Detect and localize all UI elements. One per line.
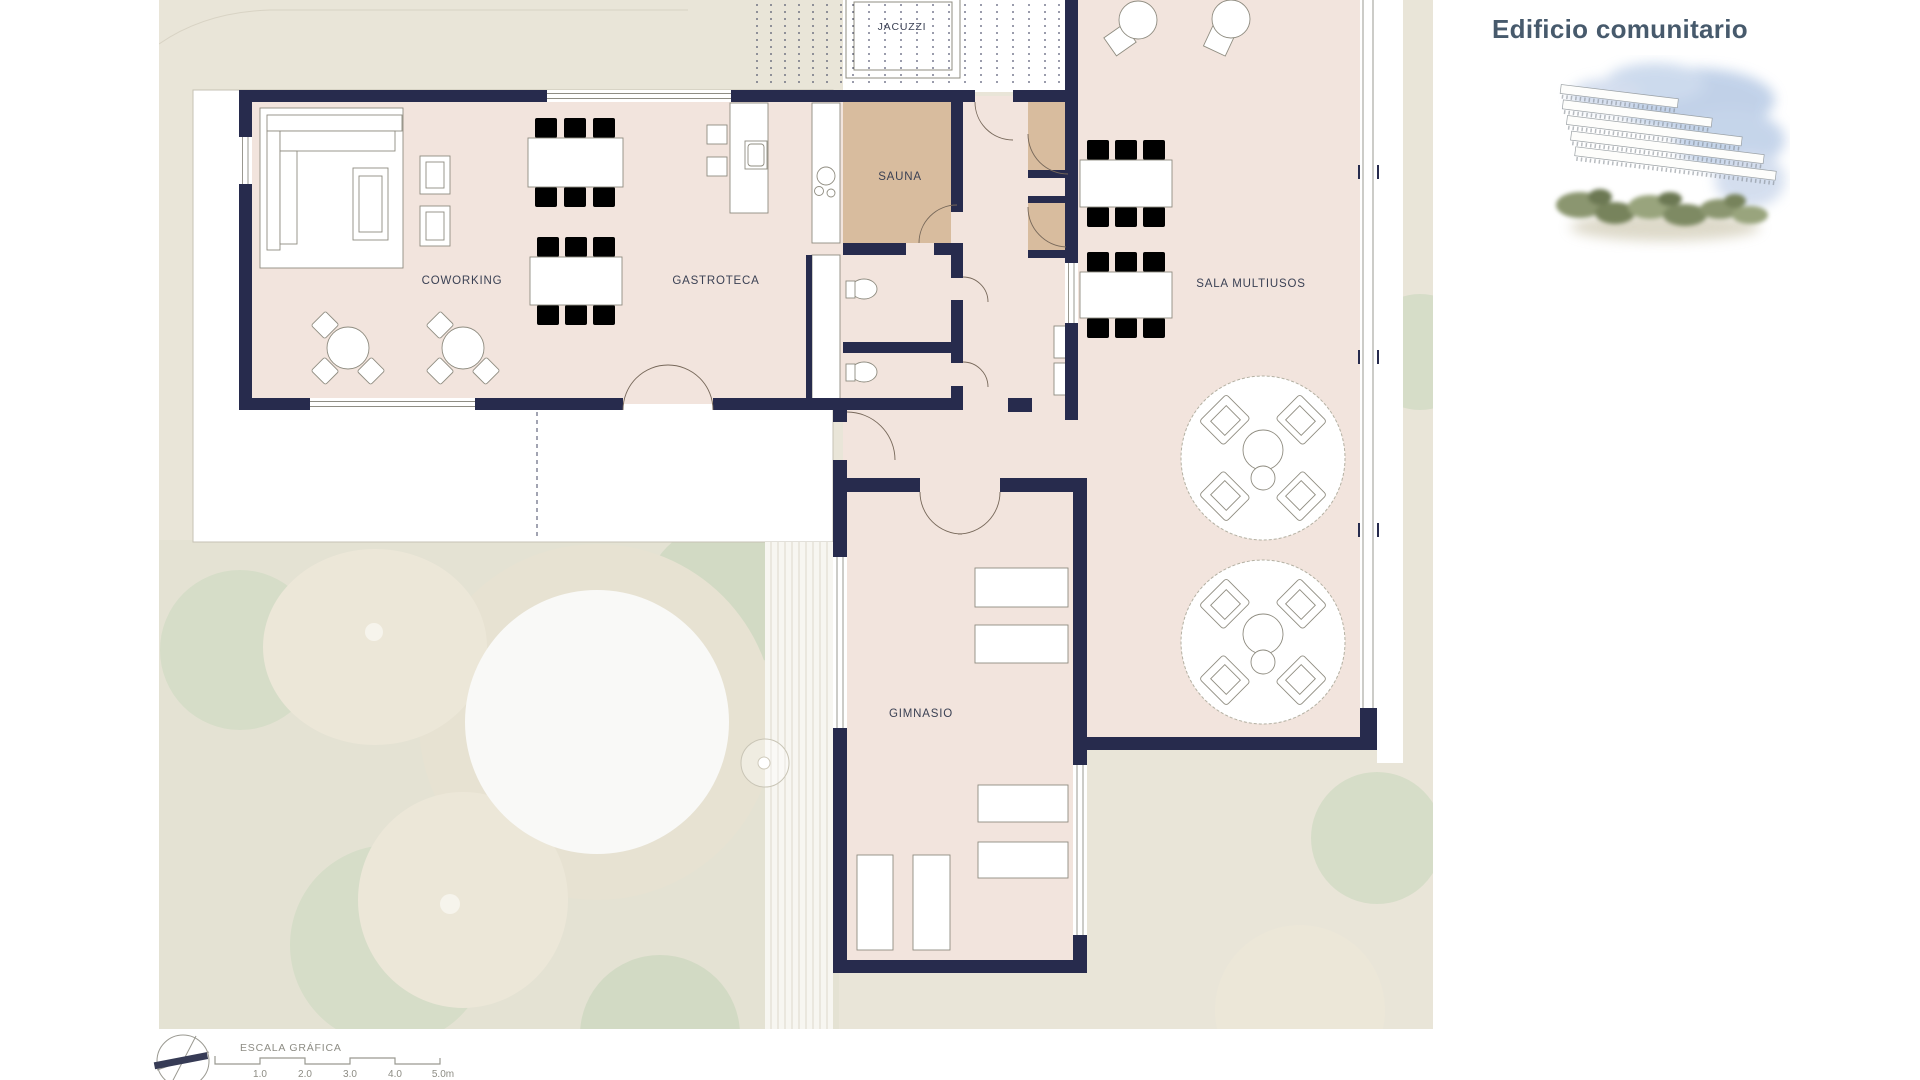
deck <box>765 542 833 1029</box>
meeting-table-1 <box>528 118 623 207</box>
scale-tick-5: 5.0m <box>432 1069 454 1080</box>
page-title: Edificio comunitario <box>1492 14 1748 45</box>
north-arrow-icon <box>154 1035 209 1080</box>
shower-2-floor <box>1028 203 1065 250</box>
scale-tick-3: 3.0 <box>343 1069 357 1080</box>
scale-bar-title: ESCALA GRÁFICA <box>240 1041 342 1054</box>
sala-table-1 <box>1080 140 1172 227</box>
scale-tick-2: 2.0 <box>298 1069 312 1080</box>
scale-tick-1: 1.0 <box>253 1069 267 1080</box>
scale-tick-4: 4.0 <box>388 1069 402 1080</box>
gimnasio-label: GIMNASIO <box>889 708 953 720</box>
sala-multiusos-label: SALA MULTIUSOS <box>1196 278 1305 290</box>
gastroteca-label: GASTROTECA <box>672 275 759 287</box>
meeting-table-2 <box>530 237 622 325</box>
lounge-circle-2 <box>1181 560 1345 724</box>
page: JACUZZI SAUNA COWORKING GASTROTECA SALA … <box>0 0 1920 1080</box>
coworking-label: COWORKING <box>422 275 503 287</box>
sauna-label: SAUNA <box>878 171 922 183</box>
scale-bar: ESCALA GRÁFICA 1.0 2.0 3.0 4.0 5.0m <box>215 1041 454 1080</box>
sala-table-2 <box>1080 252 1172 338</box>
jacuzzi-label: JACUZZI <box>878 21 927 33</box>
building-illustration <box>1540 55 1790 255</box>
lounge-circle-1 <box>1181 376 1345 540</box>
shower-1-floor <box>1028 102 1065 170</box>
